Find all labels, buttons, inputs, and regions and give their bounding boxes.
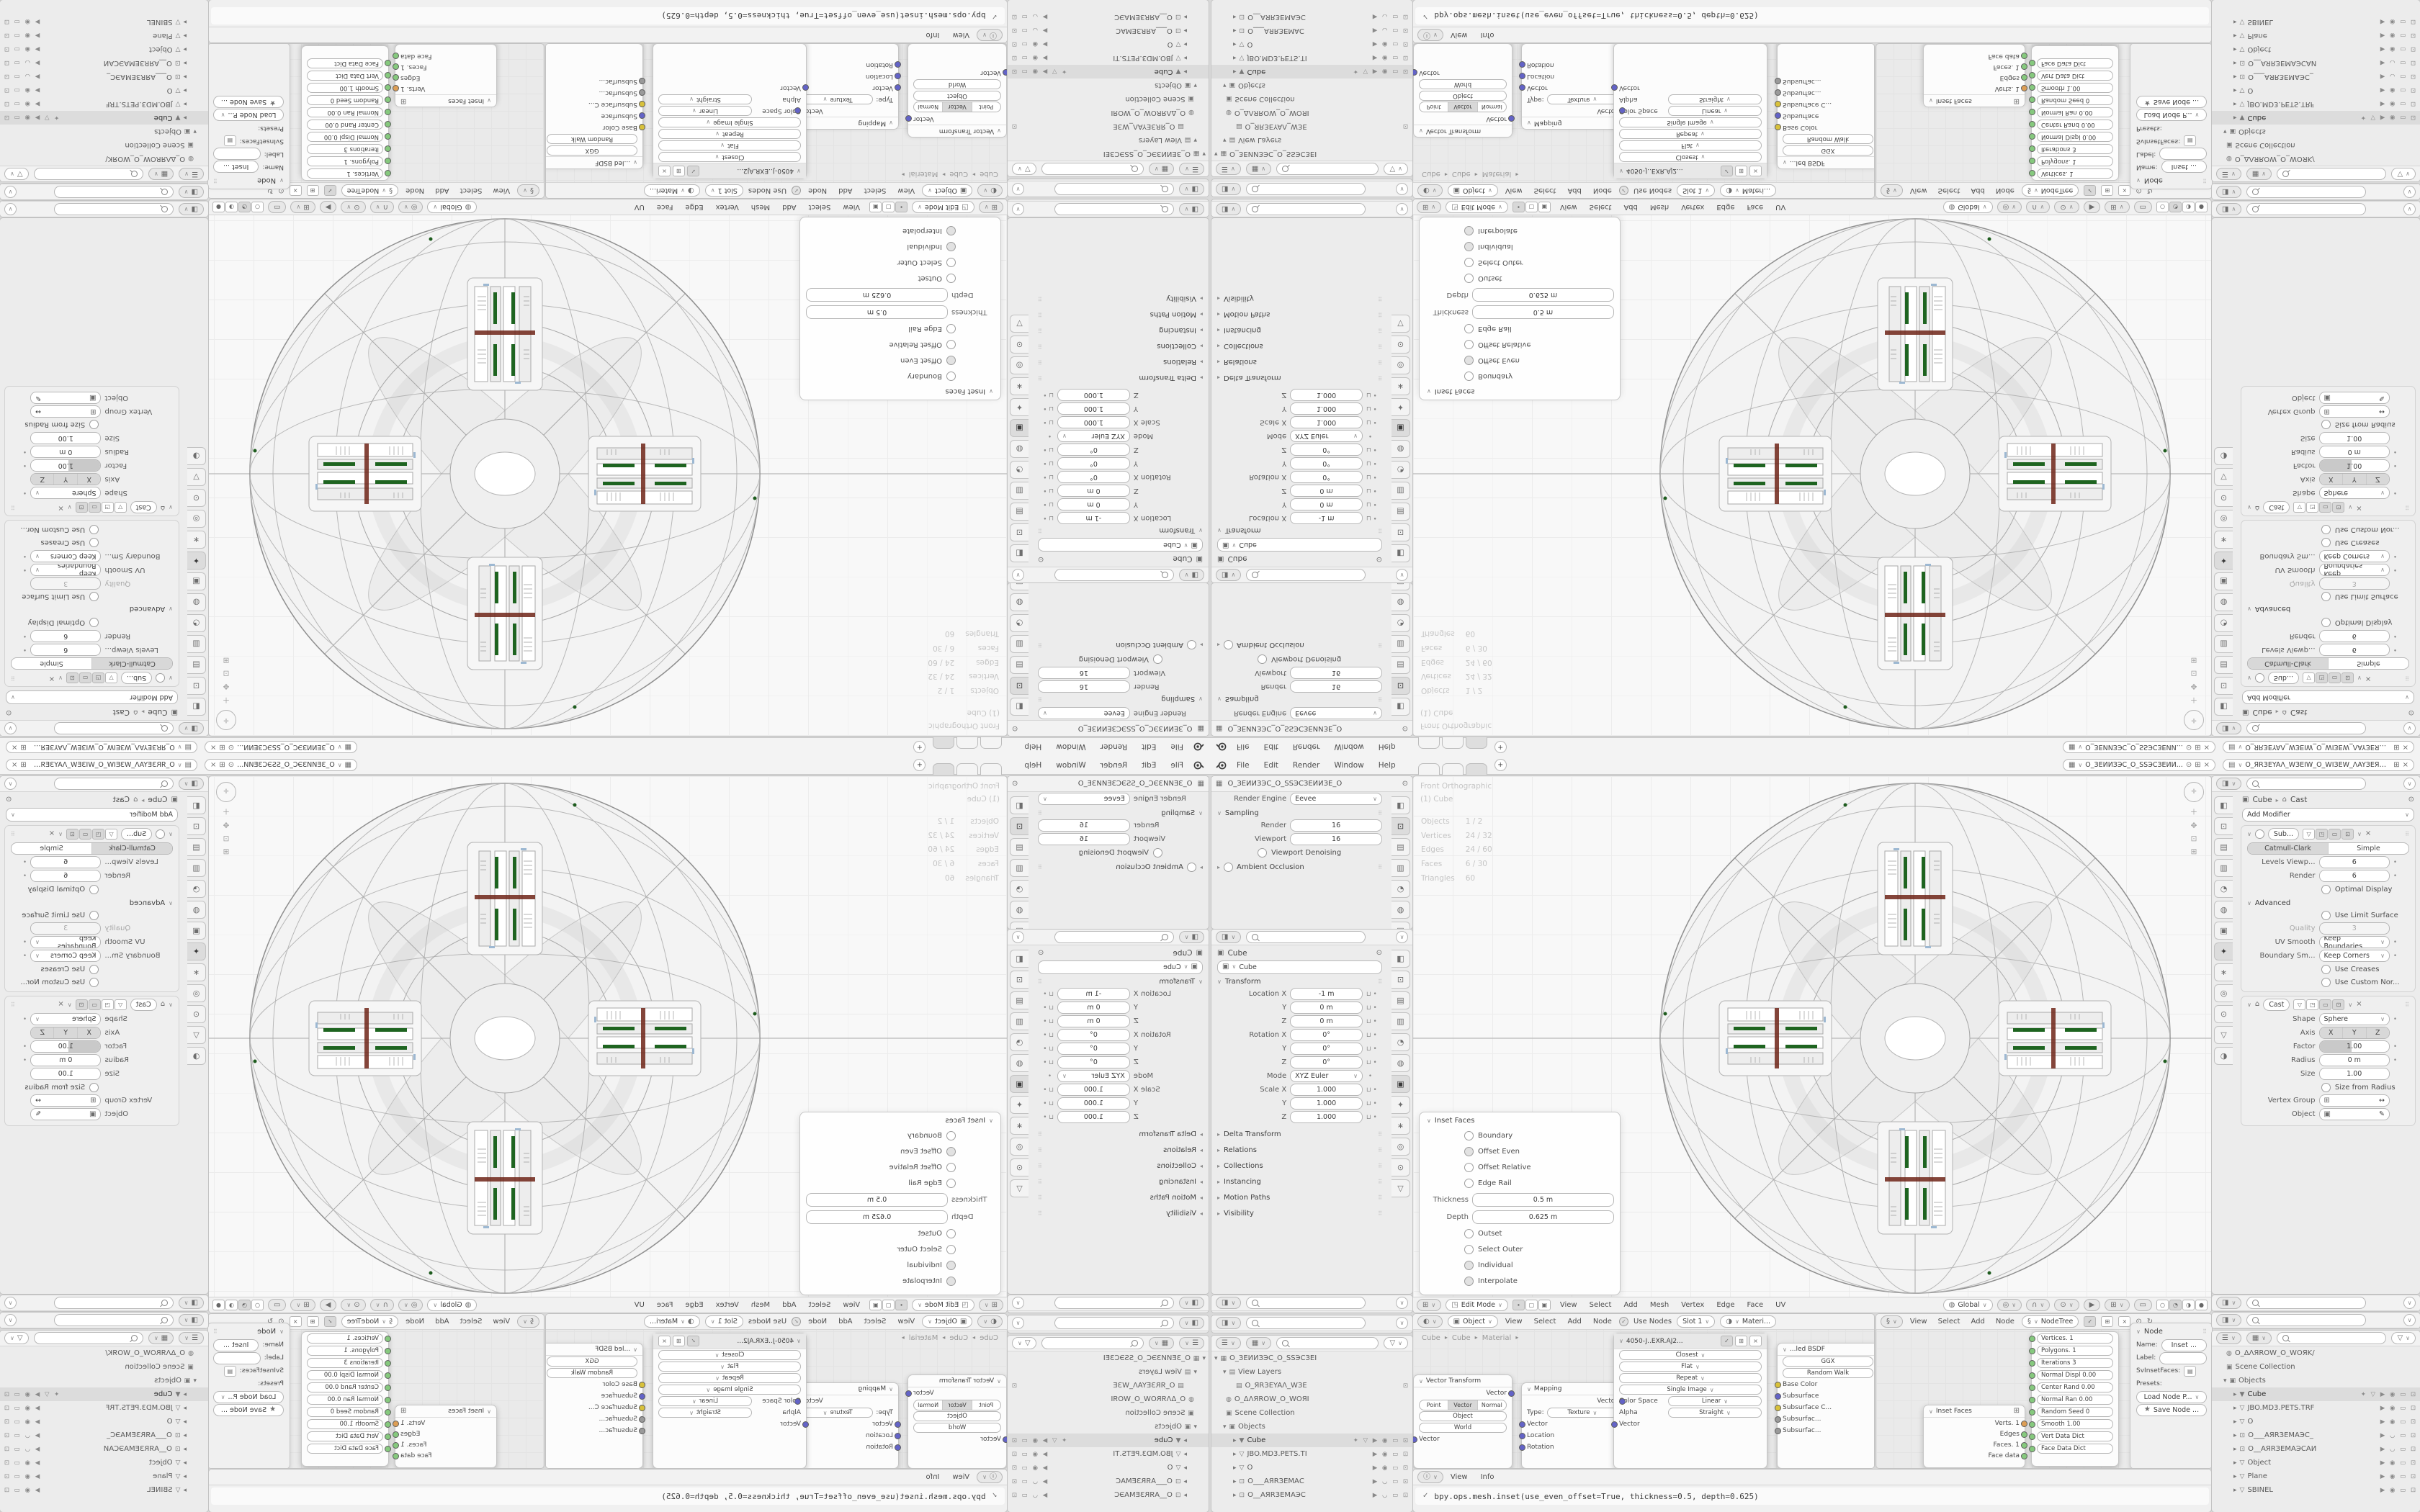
shader-menu[interactable]: Select [862, 1318, 889, 1326]
outliner-item-label[interactable]: SBINEL [2247, 1486, 2273, 1494]
image-option-select[interactable]: Closest∨ [1619, 1350, 1762, 1360]
shader-menu[interactable]: Node [806, 1318, 829, 1326]
sv-node-row[interactable]: Polygons. 1 [2032, 1344, 2118, 1356]
vector-transform-node[interactable]: ∨Vector Transform Vector PointVectorNorm… [1413, 43, 1512, 138]
quality-field[interactable]: 3 [30, 922, 102, 935]
viewport-samples-field[interactable]: 16 [1290, 833, 1382, 845]
editor-type-button[interactable]: ◨∨ [1216, 203, 1241, 215]
editor-type-button[interactable]: ◨∨ [1216, 183, 1241, 195]
properties-tab[interactable]: ▽ [1010, 315, 1028, 333]
outliner-item-label[interactable]: Objects [1155, 81, 1182, 89]
simple-button[interactable]: Simple [12, 658, 91, 669]
properties-tab[interactable]: ◧ [1010, 950, 1028, 968]
copy-icon[interactable]: ⊞ [219, 762, 225, 769]
show-editmode-toggle[interactable]: ◳ [2306, 999, 2318, 1010]
axis-z-button[interactable]: Z [31, 474, 54, 485]
editor-type-button[interactable]: ◨∨ [2216, 1297, 2241, 1309]
expand-arrow-icon[interactable]: ▸ [183, 19, 187, 26]
info-menu[interactable]: View [950, 31, 972, 39]
properties-tab[interactable]: ◑ [187, 1047, 206, 1065]
row-visibility-icons[interactable]: ▶ ◉ ▭ ⊡ [3, 101, 40, 108]
filter-button[interactable]: ▽∨ [1384, 1337, 1408, 1349]
mode-selector[interactable]: ◳Edit Mode∨ [1446, 1299, 1508, 1311]
editor-type-button[interactable]: ⊞∨ [1417, 201, 1441, 213]
mode-selector[interactable]: ◳Edit Mode∨ [912, 1299, 974, 1311]
editor-type-button[interactable]: ⓘ∨ [1417, 29, 1443, 41]
collapsed-panel-header[interactable]: ▸Instancing⠿ [1211, 1171, 1388, 1187]
row-visibility-icons[interactable]: ✦ ▽ ▶ ◉ ▭ ⊡ [2361, 1391, 2417, 1398]
expand-arrow-icon[interactable]: ▸ [1183, 68, 1187, 76]
topbar-menu[interactable]: Edit [1262, 761, 1281, 770]
options-button[interactable]: ∨ [2403, 203, 2416, 215]
animate-dot-icon[interactable]: • [1043, 1059, 1047, 1066]
row-visibility-icons[interactable]: ▶ ◉ ▭ ⊡ [1010, 41, 1047, 48]
delete-modifier-icon[interactable]: × [2365, 830, 2371, 837]
animate-dot-icon[interactable]: • [1373, 991, 1377, 998]
animate-dot-icon[interactable]: • [1043, 1086, 1047, 1094]
lock-icon[interactable]: ⊔ [1049, 392, 1054, 399]
shading-material-button[interactable]: ◑ [225, 202, 238, 212]
expand-arrow-icon[interactable]: ▸ [183, 114, 187, 122]
depth-field[interactable]: 0.625 m [806, 289, 948, 302]
segment-option[interactable]: Vector [942, 1400, 971, 1410]
expand-arrow-icon[interactable]: ▾ [1223, 1369, 1227, 1376]
properties-tab[interactable]: ∗ [2214, 531, 2233, 549]
expand-arrow-icon[interactable]: ▸ [1183, 41, 1187, 48]
viewport-menu[interactable]: Face [1745, 1301, 1766, 1309]
row-visibility-icons[interactable]: ▶ ◡ ▭ ⊡ [2380, 73, 2417, 81]
breadcrumb-modifier[interactable]: Cast [113, 708, 130, 716]
copy-button[interactable]: ⊞ [2101, 1316, 2113, 1327]
animate-dot-icon[interactable]: • [1373, 1114, 1377, 1121]
color-space-select[interactable]: Linear∨ [1668, 106, 1762, 116]
properties-tab[interactable]: ▽ [187, 468, 206, 486]
shading-rendered-button[interactable]: ● [212, 1300, 225, 1310]
options-button[interactable]: ∨ [1012, 931, 1024, 943]
advanced-panel-header[interactable]: ∨Advanced [2241, 603, 2415, 616]
sv-node-row[interactable]: Vert Data Dict [2032, 1430, 2118, 1442]
expand-arrow-icon[interactable]: ▸ [1183, 27, 1187, 35]
sv-inset-faces-node[interactable]: ∨Inset Faces⊞ Verts. 1EdgesFaces. 1Face … [395, 1405, 497, 1468]
outliner-row[interactable]: ▾ ▦ O_ЗЕИИЗЭС_О_ЅЅЭСЗЕI [1008, 147, 1209, 161]
collapsed-panel-header[interactable]: ▸Visibility⠿ [1032, 1203, 1209, 1219]
row-visibility-icons[interactable]: ▶ ◉ ▭ ⊡ [2380, 1473, 2417, 1480]
topbar-menu[interactable]: File [1234, 743, 1252, 752]
shader-menu[interactable]: Select [1532, 186, 1559, 194]
outliner-row[interactable]: ▸ ⊡ O___AЯRЗЕМАС ▶ ◡ ▭ ⊡ [1211, 1475, 1412, 1488]
depth-field[interactable]: 0.625 m [1472, 289, 1614, 302]
close-icon[interactable]: × [210, 744, 216, 751]
topbar-menu[interactable]: File [1168, 743, 1186, 752]
properties-tab[interactable]: ◎ [1010, 356, 1028, 374]
viewport-menu[interactable]: Face [1745, 203, 1766, 211]
editor-type-button[interactable]: ◐∨ [1417, 184, 1443, 197]
properties-tab[interactable]: ◎ [187, 984, 206, 1002]
close-button[interactable]: × [2118, 185, 2130, 196]
transform-value-field[interactable]: 1.000 [1057, 1111, 1130, 1123]
filter-type-button[interactable]: ▦∨ [1149, 163, 1174, 175]
optimal-display-row[interactable]: Optimal Display [2241, 616, 2415, 629]
operator-checkbox-row[interactable]: Offset Even [800, 1143, 1000, 1159]
sv-node-row[interactable]: Normal Displ 0.00 [2032, 131, 2118, 143]
options-button[interactable]: ∨ [2403, 722, 2416, 734]
copy-icon[interactable]: ⊞ [20, 762, 26, 769]
workspace-tab[interactable] [956, 738, 978, 750]
expand-arrow-icon[interactable]: ▸ [2233, 1473, 2237, 1480]
shader-menu[interactable]: Node [1591, 1318, 1614, 1326]
node-name-field[interactable]: Inset ... [2161, 161, 2207, 174]
outliner-row[interactable]: ▾ ▤ View Layers [1008, 133, 1209, 147]
render-levels-field[interactable]: 6 [30, 870, 102, 882]
operator-checkbox-row[interactable]: Offset Relative [800, 337, 1000, 353]
sverchok-node-editor[interactable]: §∨ ViewSelectAddNode §∨NodeTree ✓ ⊞ × ⊙ … [1875, 1313, 2213, 1469]
outliner-row[interactable]: ◍ O_ΔΛЯROW_O_WOЯK/ [2212, 152, 2420, 166]
sv-node-row[interactable]: Vertices. 1 [302, 1332, 388, 1344]
object-name-field[interactable]: ▣∨Cube [1217, 538, 1382, 552]
viewport-menu[interactable]: Mesh [749, 203, 772, 211]
node-menu[interactable]: View [1908, 186, 1930, 194]
lock-icon[interactable]: ⊔ [1366, 1100, 1371, 1107]
size-from-radius-row[interactable]: Size from Radius [2241, 418, 2415, 431]
image-option-select[interactable]: Single Image∨ [658, 117, 801, 127]
expand-arrow-icon[interactable]: ▸ [1233, 1437, 1237, 1444]
properties-tab[interactable]: ◍ [187, 901, 206, 919]
expand-arrow-icon[interactable]: ▸ [2233, 1432, 2237, 1439]
shading-rendered-button[interactable]: ● [2195, 1300, 2208, 1310]
expand-arrow-icon[interactable]: ▸ [183, 1432, 187, 1439]
fake-user-button[interactable]: ✓ [324, 1316, 336, 1327]
search-input[interactable] [54, 1297, 174, 1309]
depth-field[interactable]: 0.625 m [806, 1210, 948, 1224]
delete-modifier-icon[interactable]: × [58, 1001, 63, 1008]
lock-icon[interactable]: ⊔ [1049, 1045, 1054, 1053]
transform-value-field[interactable]: 0° [1057, 1029, 1130, 1041]
outliner-row[interactable]: ▸ ▽ SBINEL ▶ ◉ ▭ ⊡ [0, 15, 208, 29]
collapsed-panel-header[interactable]: ▸Motion Paths⠿ [1211, 1187, 1388, 1203]
properties-tab[interactable]: ⊡ [2214, 677, 2233, 695]
vertex-select-button[interactable]: ∙ [895, 1300, 907, 1310]
collapsed-panel-header[interactable]: ▸Collections⠿ [1032, 341, 1209, 356]
properties-tab[interactable]: ▤ [1391, 656, 1410, 674]
info-log-row[interactable]: ✓ bpy.ops.mesh.inset(use_even_offset=Tru… [211, 7, 1005, 24]
display-mode-button[interactable]: ☰∨ [2216, 168, 2241, 180]
filter-button[interactable]: ▽∨ [4, 1332, 29, 1344]
outliner-row[interactable]: ◍ O_ΔΛЯROW_O_WOЯI [1211, 1392, 1412, 1406]
copy-icon[interactable]: ⊞ [20, 744, 26, 751]
show-viewport-toggle[interactable]: ▭ [2329, 673, 2341, 684]
lock-icon[interactable]: ⊔ [1366, 991, 1371, 998]
sss-method-select[interactable]: Random Walk [1783, 134, 1873, 144]
sampling-panel-header[interactable]: ∨Sampling⠿ [1211, 806, 1388, 819]
row-visibility-icons[interactable]: ▶ ◉ ▭ ⊡ [2380, 46, 2417, 53]
collapsed-panel-header[interactable]: ▸Visibility⠿ [1211, 293, 1388, 309]
expand-arrow-icon[interactable]: ▸ [1233, 27, 1237, 35]
row-visibility-icons[interactable]: ▶ ◉ ▭ ⊡ [1373, 55, 1410, 62]
transform-value-field[interactable]: -1 m [1057, 512, 1130, 524]
properties-tab[interactable]: ▥ [1010, 482, 1028, 500]
row-visibility-icons[interactable]: ✦ ▽ ▶ ◉ ▭ ⊡ [3, 1391, 59, 1398]
show-viewport-toggle[interactable]: ▭ [2319, 999, 2331, 1010]
distribution-select[interactable]: GGX [547, 145, 637, 156]
expand-arrow-icon[interactable]: ▸ [1233, 14, 1237, 21]
properties-tab[interactable]: ✦ [1391, 398, 1410, 416]
modifier-name-field[interactable]: Sub... [121, 672, 152, 685]
operator-checkbox-row[interactable]: Boundary [800, 369, 1000, 384]
navigation-gizmo[interactable]: ✛ [216, 782, 236, 802]
lock-icon[interactable]: ⊔ [1366, 1045, 1371, 1053]
properties-tab[interactable]: ▤ [1010, 838, 1028, 856]
properties-tab[interactable]: ◧ [2214, 796, 2233, 814]
transform-value-field[interactable]: 1.000 [1290, 1097, 1363, 1110]
viewport-samples-field[interactable]: 16 [1038, 833, 1130, 845]
outliner-item-label[interactable]: O_ΔΛЯROW_O_WOЯI [1111, 109, 1186, 117]
outliner-item-label[interactable]: Object [149, 1459, 173, 1467]
animate-dot-icon[interactable]: • [1373, 515, 1377, 522]
properties-tab[interactable]: ▽ [1391, 1179, 1410, 1197]
collapsed-panel-header[interactable]: ▸Instancing⠿ [1032, 325, 1209, 341]
viewport-menu[interactable]: Mesh [1648, 203, 1671, 211]
sv-node-row[interactable]: Normal Displ 0.00 [302, 131, 388, 143]
search-input[interactable] [34, 168, 143, 180]
space-from-select[interactable]: Object [913, 1411, 1001, 1421]
overlays-toggle[interactable]: ⊞∨ [2105, 1299, 2129, 1311]
properties-tab[interactable]: ◔ [1391, 614, 1410, 632]
topbar-menu[interactable]: Window [1054, 743, 1088, 752]
breadcrumb-modifier[interactable]: Cast [113, 796, 130, 804]
row-visibility-icons[interactable]: ▶ ◉ ▭ ⊡ [3, 1473, 40, 1480]
row-visibility-icons[interactable]: ▶ ◡ ▭ ⊡ [1010, 14, 1047, 21]
properties-tab[interactable]: ⊡ [1010, 971, 1028, 989]
load-preset-button[interactable]: Load Node P...∨ [2136, 109, 2207, 122]
row-visibility-icons[interactable]: ▶ ◉ ▭ ⊡ [1010, 55, 1047, 62]
outliner-row[interactable]: ▸ ⊡ O___AЯRЗЕМАЭС_ ▶ ◡ ▭ ⊡ [0, 70, 208, 84]
collapsed-panel-header[interactable]: ▸Delta Transform⠿ [1211, 1124, 1388, 1140]
alpha-select[interactable]: Straight∨ [658, 1408, 752, 1418]
sv-node-row[interactable]: Normal Ran 0.00 [2032, 107, 2118, 119]
expand-arrow-icon[interactable]: ▸ [2233, 32, 2237, 40]
snap-toggle[interactable]: ∩∨ [370, 1299, 394, 1311]
shader-type-select[interactable]: ▣Object∨ [1448, 184, 1498, 197]
mapping-type-select[interactable]: Texture∨ [1547, 94, 1618, 104]
operator-checkbox-row[interactable]: Interpolate [800, 1273, 1000, 1289]
expand-arrow-icon[interactable]: ▸ [1183, 55, 1187, 62]
outliner-item-label[interactable]: O_ЗЕИИЗЭС_О_ЅЅЭСЗЕI [1229, 150, 1317, 158]
save-preset-button[interactable]: ★Save Node ... [2136, 96, 2207, 109]
space-from-select[interactable]: Object [1419, 91, 1507, 101]
proportional-edit-toggle[interactable]: ⊙∨ [341, 201, 365, 213]
shader-menu[interactable]: Node [806, 186, 829, 194]
use-nodes-checkbox[interactable]: ✓ [1619, 186, 1628, 195]
row-visibility-icons[interactable]: ✦ ▽ ▶ ◉ ▭ ⊡ [1010, 68, 1067, 76]
outliner-item-label[interactable]: Scene Collection [1235, 95, 1295, 103]
lock-icon[interactable]: ⊔ [1366, 1086, 1371, 1094]
viewport-menu[interactable]: Face [655, 203, 676, 211]
sv-node-row[interactable]: Random Seed 0 [2032, 1405, 2118, 1418]
expand-arrow-icon[interactable]: ▸ [1233, 68, 1237, 76]
expand-arrow-icon[interactable]: ▾ [2223, 128, 2227, 135]
outliner-item-label[interactable]: JBO.MD3.PETS.TI [1113, 1450, 1173, 1458]
save-preset-button[interactable]: ★Save Node ... [213, 96, 284, 109]
sv-node-row[interactable]: Vert Data Dict [2032, 70, 2118, 82]
image-texture-node[interactable]: ∨4050-J..EXR.AJ2... ✓⊞× Closest∨Flat∨Rep… [653, 43, 807, 179]
collapsed-panel-header[interactable]: ▸Collections⠿ [1211, 1156, 1388, 1171]
viewport-denoising-row[interactable]: Viewport Denoising [1211, 653, 1388, 666]
pivot-selector[interactable]: ◎∨ [398, 1299, 423, 1311]
properties-tab[interactable]: ⊡ [1391, 677, 1410, 695]
workspace-tab[interactable] [1466, 738, 1487, 750]
use-limit-row[interactable]: Use Limit Surface [5, 909, 179, 922]
ambient-occlusion-panel[interactable]: ▸Ambient Occlusion⠿ [1032, 639, 1209, 653]
modifier-name-field[interactable]: Cast [130, 999, 157, 1011]
unlink-button[interactable]: × [658, 1336, 671, 1346]
properties-tab[interactable]: ⊡ [1010, 817, 1028, 835]
sv-node-row[interactable]: Face Data Dict [2032, 1442, 2118, 1454]
properties-tab[interactable]: ◑ [187, 447, 206, 465]
outliner-item-label[interactable]: Cube [1155, 68, 1173, 76]
outliner-row[interactable]: ▸ ▽ Plane ▶ ◉ ▭ ⊡ [0, 1470, 208, 1483]
outliner-item-label[interactable]: SBINEL [147, 1486, 173, 1494]
editor-type-button[interactable]: ◨∨ [179, 1297, 204, 1309]
pin-icon[interactable]: ⊙ [1038, 950, 1044, 957]
pin-icon[interactable]: ⊙ [1012, 780, 1018, 788]
sv-node-row[interactable]: Iterations 3 [2032, 143, 2118, 156]
outliner-item-label[interactable]: JBO.MD3.PETS.TI [1247, 1450, 1307, 1458]
lock-icon[interactable]: ⊔ [1049, 1032, 1054, 1039]
properties-tab[interactable]: ▤ [2214, 656, 2233, 674]
viewport-denoising-row[interactable]: Viewport Denoising [1211, 846, 1388, 859]
lock-icon[interactable]: ⊔ [1366, 446, 1371, 454]
shader-type-select[interactable]: ▣Object∨ [1448, 1315, 1498, 1328]
options-button[interactable]: ∨ [2403, 1297, 2416, 1309]
animate-dot-icon[interactable]: • [1043, 392, 1047, 399]
properties-tab[interactable]: ◧ [1391, 796, 1410, 814]
outliner-item-label[interactable]: O_ЯRЗЕYAΛ_WЗЕ [1245, 1382, 1307, 1390]
properties-tab[interactable]: ▥ [1010, 859, 1028, 877]
topbar-menu[interactable]: Window [1332, 743, 1366, 752]
image-option-select[interactable]: Repeat∨ [658, 129, 801, 139]
animate-dot-icon[interactable]: • [1373, 1100, 1377, 1107]
delete-modifier-icon[interactable]: × [58, 504, 63, 511]
row-visibility-icons[interactable]: ▶ ◡ ▭ ⊡ [1373, 1492, 1410, 1499]
topbar-menu[interactable]: Window [1054, 761, 1088, 770]
sss-method-select[interactable]: Random Walk [547, 134, 637, 144]
edge-select-button[interactable]: ▢ [1525, 1300, 1538, 1310]
lock-icon[interactable]: ⊔ [1049, 1100, 1054, 1107]
outliner-item-label[interactable]: Objects [154, 127, 181, 135]
row-visibility-icons[interactable]: ▶ ◉ ▭ ⊡ [1373, 1464, 1410, 1472]
search-input[interactable] [1054, 183, 1174, 195]
viewport-menu[interactable]: Mesh [1648, 1301, 1671, 1309]
outliner-row[interactable]: ▸ ▽ JBO.MD3.PETS.TRF ▶ ◉ ▭ ⊡ [2212, 1401, 2420, 1415]
mapping-type-select[interactable]: Texture∨ [802, 94, 873, 104]
principled-bsdf-node[interactable]: ∨...led BSDF GGX Random Walk Base ColorS… [545, 1343, 643, 1469]
outliner-row[interactable]: ▸ ⊡ O__AЯRЗЕМАЭС ▶ ◡ ▭ ⊡ [1008, 10, 1209, 24]
viewport-3d[interactable]: Front Orthographic (1) Cube Objects1 / 2… [208, 775, 1008, 1313]
properties-tab[interactable]: ⊙ [1391, 336, 1410, 354]
editor-type-button[interactable]: §∨ [517, 184, 539, 197]
workspace-tab[interactable] [933, 738, 954, 750]
filter-button[interactable]: ▽∨ [1384, 163, 1408, 175]
use-creases-row[interactable]: Use Creases [5, 963, 179, 976]
outliner-item-label[interactable]: JBO.MD3.PETS.TRF [2247, 1404, 2314, 1412]
transform-value-field[interactable]: 0° [1290, 1029, 1363, 1041]
segment-option[interactable]: Normal [1478, 1400, 1506, 1410]
catmull-clark-button[interactable]: Catmull-Clark [91, 843, 172, 854]
outliner-row[interactable]: ◍ O_ΔΛЯROW_O_WOЯK/ [2212, 1346, 2420, 1360]
outliner-row[interactable]: ▣ Scene Collection [0, 1360, 208, 1374]
properties-tab[interactable]: ▣ [1391, 419, 1410, 437]
image-texture-node[interactable]: ∨4050-J..EXR.AJ2... ✓⊞× Closest∨Flat∨Rep… [1613, 1333, 1767, 1469]
topbar-menu[interactable]: Help [1376, 743, 1398, 752]
show-edit-toggle[interactable]: ▽ [115, 503, 127, 513]
properties-tab[interactable]: ◔ [1391, 461, 1410, 479]
node-menu[interactable]: Node [403, 186, 426, 194]
expand-arrow-icon[interactable]: ▸ [2233, 73, 2237, 81]
animate-dot-icon[interactable]: • [1373, 1086, 1377, 1094]
shader-menu[interactable]: Add [836, 186, 854, 194]
mapping-node[interactable]: ∨Mapping Vector Type:Texture∨ VectorLoca… [1521, 43, 1623, 130]
image-option-select[interactable]: Single Image∨ [1619, 1385, 1762, 1395]
expand-arrow-icon[interactable]: ▸ [2233, 1418, 2237, 1426]
image-option-select[interactable]: Closest∨ [658, 1350, 801, 1360]
row-visibility-icons[interactable]: ✦ ▽ ▶ ◉ ▭ ⊡ [1353, 1437, 1410, 1444]
properties-tab[interactable]: ◧ [1010, 796, 1028, 814]
render-engine-select[interactable]: Eevee∨ [1290, 793, 1382, 805]
properties-tab[interactable]: ◍ [2214, 593, 2233, 611]
properties-tab[interactable]: ⊙ [1010, 336, 1028, 354]
outliner-row[interactable]: ▣ Scene Collection [2212, 138, 2420, 152]
axis-z-button[interactable]: Z [2367, 474, 2390, 485]
animate-dot-icon[interactable]: • [1373, 501, 1377, 508]
properties-tab[interactable]: ▽ [1010, 1179, 1028, 1197]
viewlayer-selector[interactable]: ▤ ∨ O_ЯRЗЕYAΛ_WЗЕIW_O_WIЗЕW_ΛAYЗЕЯR_O ⊞ … [2223, 741, 2414, 753]
operator-checkbox-row[interactable]: Edge Rail [800, 1175, 1000, 1191]
search-input[interactable] [1054, 931, 1174, 943]
radius-field[interactable]: 0 m [30, 446, 102, 458]
camera-view-icon[interactable]: ⊡ [223, 834, 230, 843]
outliner-item-label[interactable]: JBO.MD3.PETS.TRF [2247, 100, 2314, 108]
simple-button[interactable]: Simple [2329, 658, 2408, 669]
nodetree-datablock[interactable]: §∨NodeTree [341, 184, 398, 197]
expand-arrow-icon[interactable]: ▾ [1214, 150, 1218, 158]
snap-toggle[interactable]: ∩∨ [2026, 1299, 2050, 1311]
axis-z-button[interactable]: Z [31, 1027, 54, 1038]
editor-type-button[interactable]: ◨∨ [2216, 722, 2241, 734]
outliner-item-label[interactable]: O [2247, 1418, 2253, 1426]
animate-dot-icon[interactable]: • [1043, 460, 1047, 467]
outliner-row[interactable]: ▸ ▽ JBO.MD3.PETS.TI ▶ ◉ ▭ ⊡ [1211, 1447, 1412, 1461]
row-visibility-icons[interactable]: ✦ ▽ ▶ ◉ ▭ ⊡ [1010, 1437, 1067, 1444]
workspace-tab[interactable] [956, 763, 978, 775]
node-label-field[interactable] [213, 148, 261, 161]
row-visibility-icons[interactable]: ✦ ▽ ▶ ◉ ▭ ⊡ [2361, 114, 2417, 122]
properties-tab[interactable]: ▤ [2214, 838, 2233, 856]
outliner-item-label[interactable]: O_ΔΛЯROW_O_WOЯK/ [105, 155, 185, 163]
delete-modifier-icon[interactable]: × [2356, 1001, 2362, 1008]
zoom-icon[interactable]: ＋ [2190, 806, 2198, 817]
expand-arrow-icon[interactable]: ▸ [2233, 60, 2237, 67]
radius-field[interactable]: 0 m [2319, 1054, 2390, 1066]
outliner-item-label[interactable]: Cube [154, 1390, 173, 1398]
face-select-button[interactable]: ▣ [869, 1300, 882, 1310]
axis-y-button[interactable]: Y [54, 1027, 78, 1038]
outliner-row[interactable]: ▸ ▽ Plane ▶ ◉ ▭ ⊡ [2212, 1470, 2420, 1483]
show-edit-toggle[interactable]: ▽ [2303, 673, 2315, 684]
outliner-item-label[interactable]: View Layers [1238, 136, 1281, 144]
outliner-item-label[interactable]: View Layers [1139, 136, 1182, 144]
show-viewport-toggle[interactable]: ▭ [89, 999, 101, 1010]
expand-arrow-icon[interactable]: ▸ [2233, 1459, 2237, 1467]
